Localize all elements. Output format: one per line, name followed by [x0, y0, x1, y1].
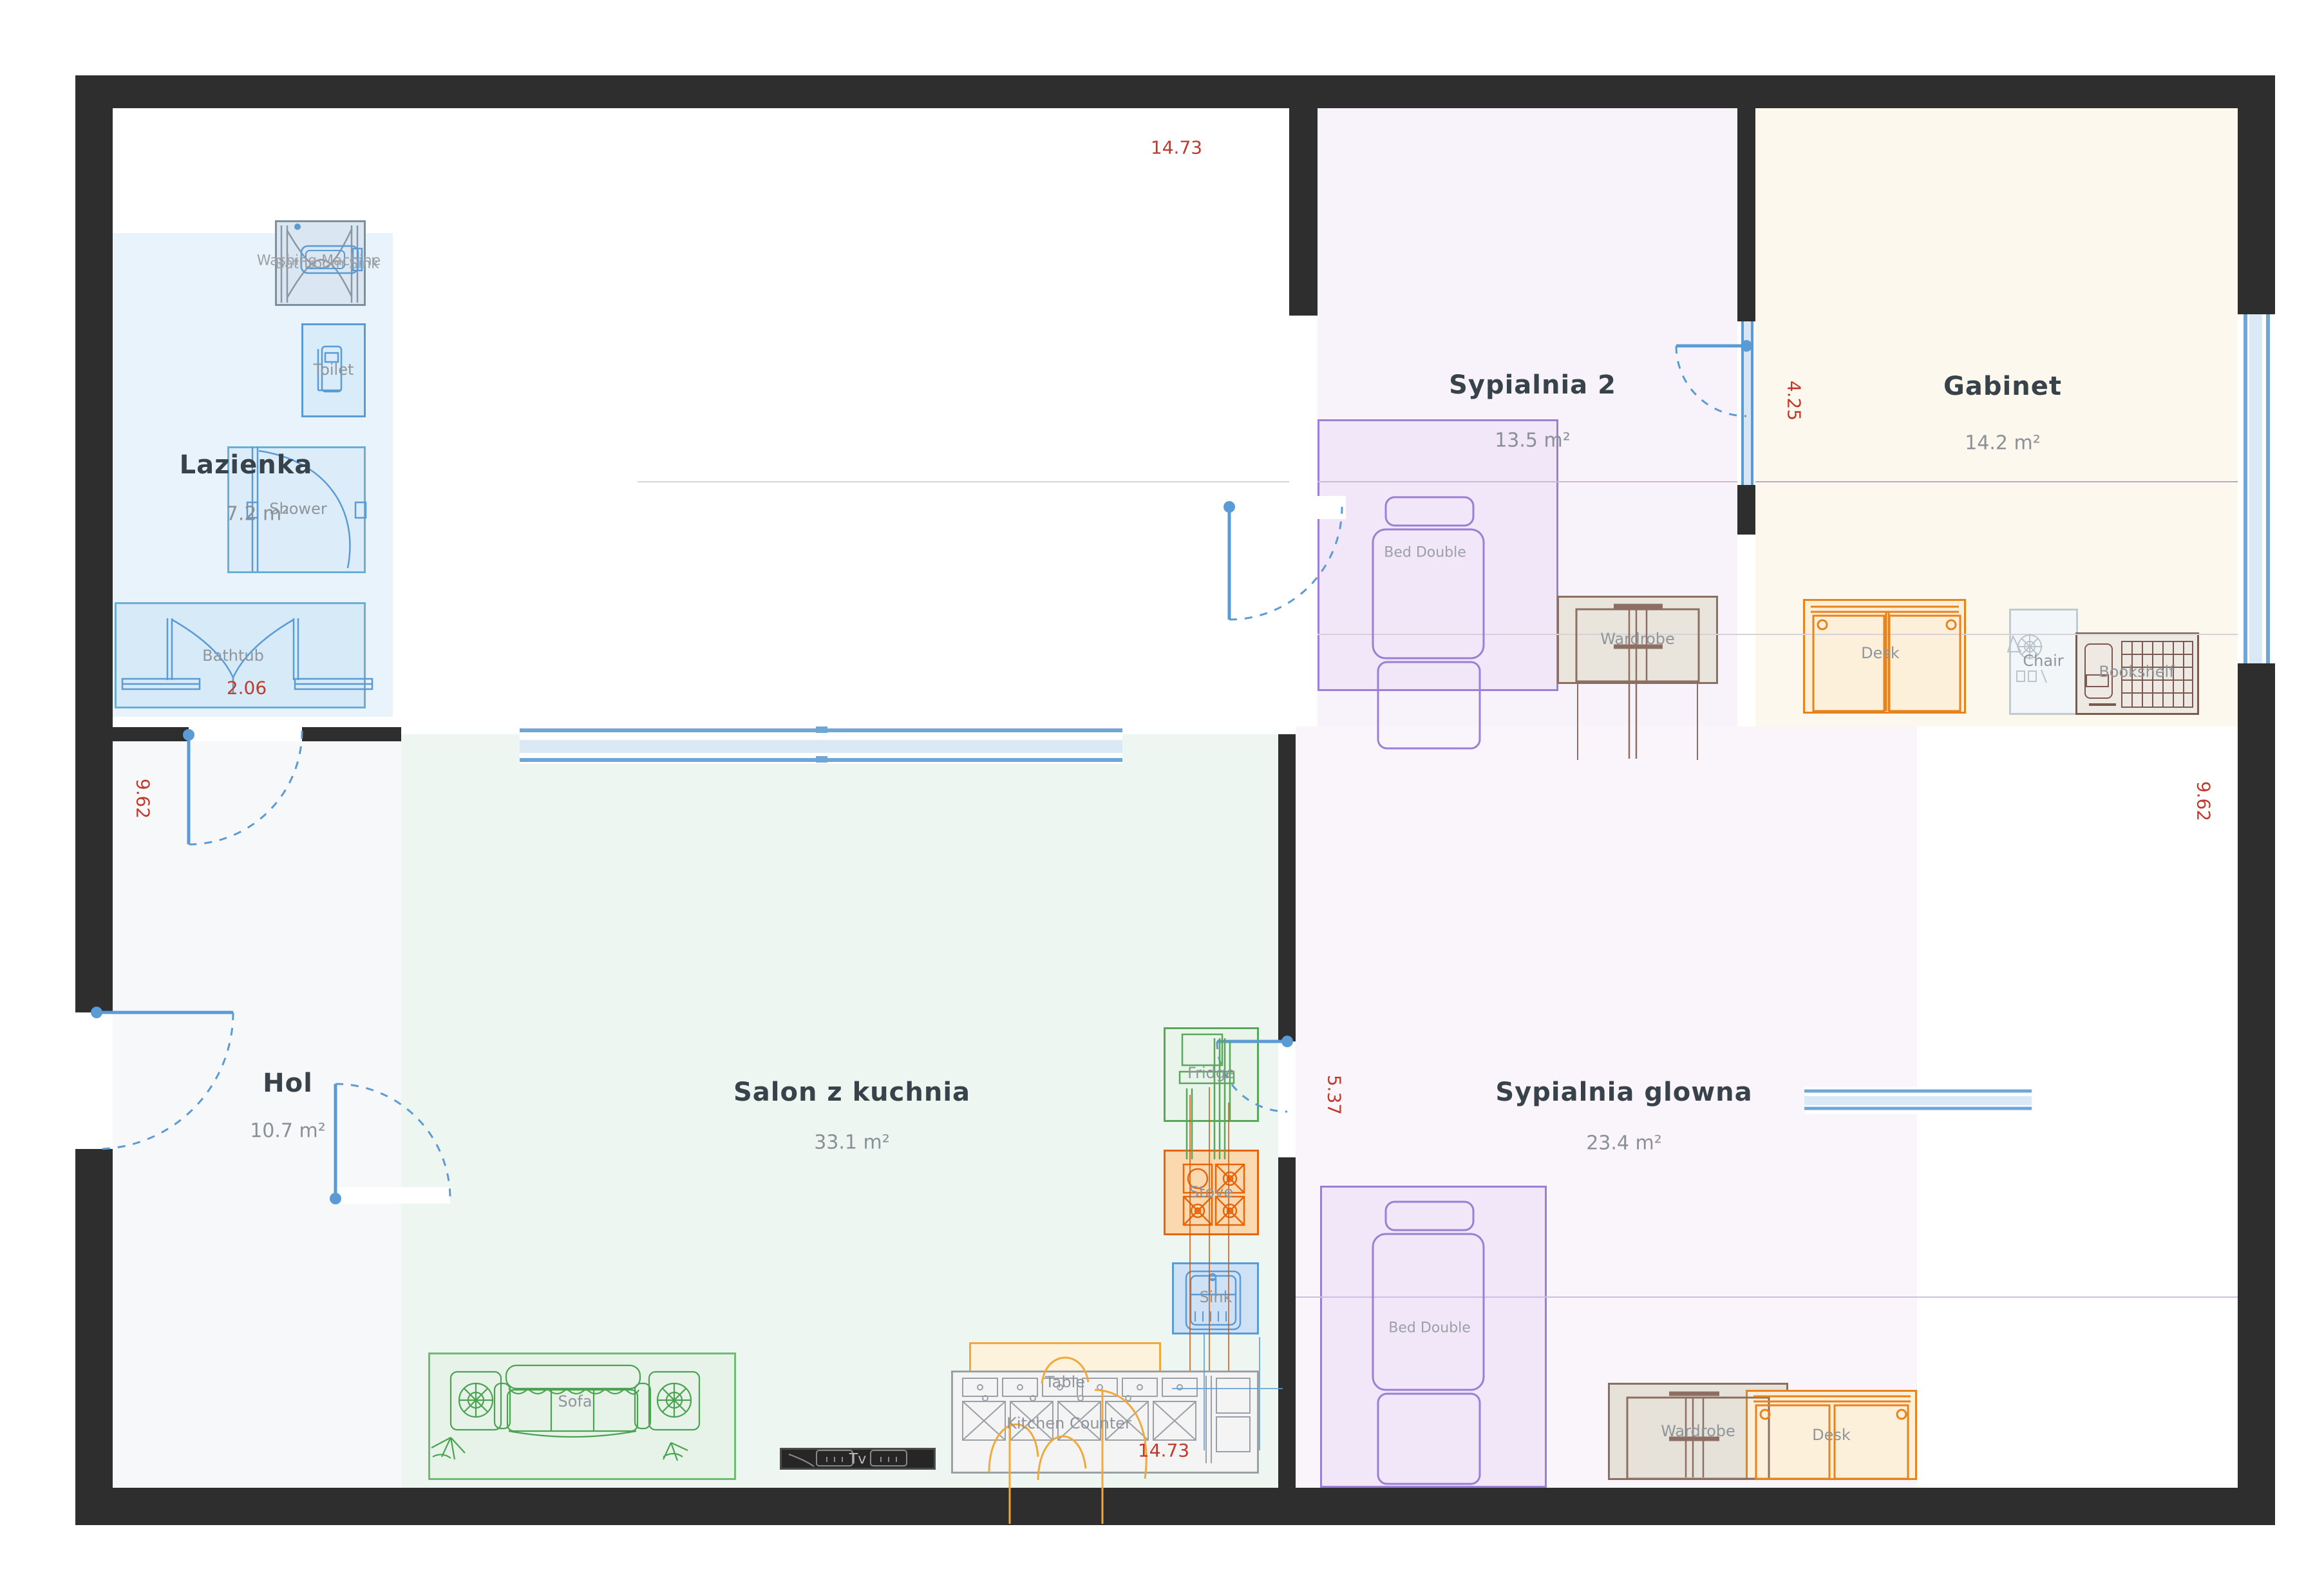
shower-label: Shower [269, 500, 326, 518]
wall-hol-top-right [302, 727, 401, 741]
opening-hol-salon [335, 1187, 450, 1204]
floor-plan: Washing Machine Bathroom Sink Toilet Laz… [0, 0, 2324, 1585]
kitchen-counter-label: Kitchen Counter [1006, 1414, 1131, 1432]
wall-sypialnia2-top [1289, 108, 1318, 316]
desk-glowna-label: Desk [1812, 1426, 1851, 1444]
dim-gabinet-wall: 4.25 [1784, 381, 1805, 421]
dim-top-width: 14.73 [1151, 137, 1202, 158]
toilet-label: Toilet [314, 361, 354, 379]
glowna-bed-area[interactable] [1320, 1186, 1547, 1488]
sofa-group[interactable] [428, 1352, 736, 1480]
room-title-hol: Hol [263, 1068, 313, 1098]
desk-gabinet-label: Desk [1861, 644, 1900, 662]
wall-top [75, 75, 2275, 108]
dim-right-height: 9.62 [2193, 781, 2215, 821]
opening-gabinet-door [1737, 321, 1755, 485]
room-title-sypialnia2: Sypialnia 2 [1449, 370, 1616, 400]
sink-label: Sink [1199, 1288, 1232, 1306]
room-area-hol: 10.7 m² [250, 1120, 326, 1143]
wardrobe-glowna-label: Wardrobe [1661, 1422, 1735, 1440]
chair-gabinet-label: Chair [2023, 652, 2063, 670]
dim-bottom-width: 14.73 [1138, 1440, 1189, 1461]
room-area-gabinet: 14.2 m² [1965, 432, 2041, 455]
wall-right-lower [2238, 663, 2275, 1525]
dim-bathtub: 2.06 [227, 678, 267, 699]
room-area-salon: 33.1 m² [814, 1132, 890, 1154]
wall-right-upper [2238, 75, 2275, 314]
wall-bottom [75, 1488, 2275, 1525]
room-title-salon: Salon z kuchnia [733, 1077, 970, 1107]
wall-left-lower [75, 1149, 113, 1525]
opening-glowna [1278, 1041, 1296, 1157]
zone-hol[interactable] [113, 741, 401, 1488]
wall-salon-glowna-upper [1278, 734, 1296, 1041]
wall-left-upper [75, 75, 113, 1012]
room-title-gabinet: Gabinet [1943, 372, 2062, 401]
bookshelf-label: Bookshelf [2099, 663, 2174, 681]
window-right-wall[interactable] [2239, 314, 2274, 663]
dim-left-height: 9.62 [133, 779, 154, 819]
tv-label: Tv [849, 1452, 866, 1468]
dim-salon-bedroom-wall: 5.37 [1324, 1075, 1345, 1115]
bathroom-sink-label: Bathroom Sink [275, 256, 379, 272]
room-title-lazienka: Lazienka [180, 450, 313, 480]
opening-sypialnia2 [1285, 496, 1346, 519]
room-title-sypialnia-glowna: Sypialnia glowna [1495, 1077, 1752, 1107]
wall-sypialnia2-gabinet-upper [1737, 108, 1755, 321]
bed-double-sypialnia2-label: Bed Double [1384, 545, 1466, 561]
sofa-label: Sofa [558, 1392, 592, 1410]
room-area-sypialnia2: 13.5 m² [1495, 430, 1571, 452]
table-label: Table [1045, 1373, 1085, 1391]
wall-sypialnia2-gabinet-lower [1737, 485, 1755, 535]
stove-label: Stove [1189, 1183, 1233, 1201]
fridge-label: Fridge [1187, 1064, 1235, 1082]
wardrobe-sypialnia2-label: Wardrobe [1600, 630, 1675, 648]
wall-salon-glowna-lower [1278, 1157, 1296, 1488]
bed-double-glowna-label: Bed Double [1388, 1320, 1471, 1336]
room-area-sypialnia-glowna: 23.4 m² [1586, 1132, 1662, 1155]
bathtub-label: Bathtub [202, 647, 264, 665]
wall-hol-top-left [113, 727, 189, 741]
